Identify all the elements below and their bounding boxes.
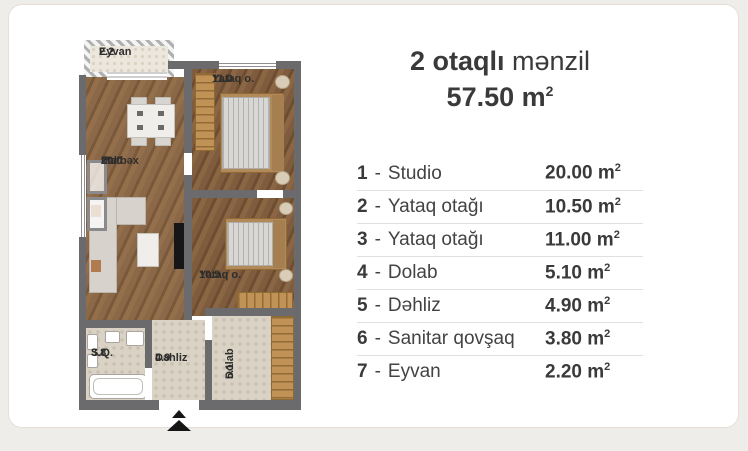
- floor-plan: Eyvan 2.2 Yataq o. 11.0 Zal Matbəx 20.0 …: [74, 35, 306, 440]
- bed2-blanket: [227, 222, 273, 266]
- row-number: 6: [357, 328, 368, 350]
- room-dolab-area: 5.1: [224, 364, 237, 379]
- legend-row: 1-Studio 20.00 m2: [357, 157, 643, 190]
- row-area: 3.80 m2: [545, 328, 610, 350]
- room-dehliz-area: 4.9: [155, 352, 170, 365]
- wall-dolab-top: [205, 308, 301, 316]
- row-dash: -: [375, 196, 381, 218]
- row-dash: -: [375, 163, 381, 185]
- room-zal-area: 20.0: [101, 155, 122, 168]
- title-word: mənzil: [512, 46, 590, 76]
- legend-row: 4-Dolab 5.10 m2: [357, 256, 643, 289]
- room-eyvan-area: 2.2: [99, 46, 114, 59]
- tv: [174, 223, 184, 269]
- room-sq-area: 3.8: [91, 347, 106, 360]
- wall-bottom-right: [199, 400, 301, 410]
- wall-hall-right: [205, 340, 212, 400]
- bathtub: [89, 374, 147, 399]
- sink: [105, 331, 120, 343]
- row-name: Sanitar qovşaq: [388, 328, 515, 350]
- door-bed1-bed2: [257, 190, 283, 198]
- legend-row: 3-Yataq otağı 11.00 m2: [357, 223, 643, 256]
- door-zal-bed1: [184, 153, 192, 175]
- window-casement-lower: [87, 197, 107, 231]
- row-name: Eyvan: [388, 361, 441, 383]
- window-bed1: [219, 61, 276, 69]
- total-area: 57.50 m2: [357, 81, 643, 115]
- nightstand: [275, 75, 290, 89]
- title-rooms-count: 2 otaqlı: [410, 46, 505, 76]
- total-area-unit: m2: [522, 82, 554, 112]
- entrance-arrow-icon: [167, 420, 191, 431]
- page-title: 2 otaqlı mənzil 57.50 m2: [357, 45, 643, 115]
- bed2-headboard: [273, 220, 285, 268]
- wall-bedroom-divider-end: [283, 190, 294, 198]
- door-dolab: [205, 316, 212, 340]
- row-number: 1: [357, 163, 368, 185]
- wall-bath-right: [145, 328, 152, 368]
- wall-left: [79, 75, 86, 410]
- row-area: 4.90 m2: [545, 295, 610, 317]
- window-balcony-door: [107, 72, 167, 80]
- wall-middle-lower: [184, 175, 192, 320]
- row-name: Studio: [388, 163, 442, 185]
- nightstand: [275, 171, 290, 185]
- wall-bedroom-divider: [192, 190, 257, 198]
- bed1-headboard: [272, 95, 284, 171]
- row-number: 3: [357, 229, 368, 251]
- apartment-card: Eyvan 2.2 Yataq o. 11.0 Zal Matbəx 20.0 …: [8, 4, 739, 428]
- washing-machine: [126, 331, 144, 346]
- row-number: 2: [357, 196, 368, 218]
- legend-row: 5-Dəhliz 4.90 m2: [357, 289, 643, 322]
- row-dash: -: [375, 262, 381, 284]
- row-dash: -: [375, 229, 381, 251]
- plate: [158, 125, 164, 130]
- page-background: { "header": { "title_bold": "2 otaqlı", …: [0, 0, 748, 451]
- dining-chair: [131, 137, 147, 146]
- row-area: 2.20 m2: [545, 361, 610, 383]
- room-legend: 1-Studio 20.00 m2 2-Yataq otağı 10.50 m2…: [357, 157, 643, 388]
- nightstand: [279, 269, 293, 282]
- room-bed1-area: 11.0: [212, 73, 233, 86]
- row-name: Yataq otağı: [388, 229, 484, 251]
- wall-right: [294, 61, 301, 410]
- label-dolab: Dolab 5.1: [224, 335, 264, 379]
- total-area-value: 57.50: [447, 82, 515, 112]
- wall-bottom-left: [79, 400, 159, 410]
- dolab-shelf: [271, 316, 294, 400]
- legend-row: 7-Eyvan 2.20 m2: [357, 355, 643, 388]
- door-bath: [145, 368, 152, 400]
- window-living: [79, 155, 86, 237]
- row-dash: -: [375, 328, 381, 350]
- row-area: 5.10 m2: [545, 262, 610, 284]
- row-number: 5: [357, 295, 368, 317]
- plate: [137, 125, 143, 130]
- plate: [137, 111, 143, 116]
- row-number: 4: [357, 262, 368, 284]
- row-name: Dəhliz: [388, 295, 441, 317]
- row-area: 10.50 m2: [545, 196, 621, 218]
- dining-table: [127, 104, 175, 138]
- wardrobe-bed2: [237, 292, 293, 309]
- title-line: 2 otaqlı mənzil: [357, 45, 643, 79]
- room-bed2-area: 10.5: [199, 269, 220, 282]
- legend-row: 2-Yataq otağı 10.50 m2: [357, 190, 643, 223]
- row-dash: -: [375, 361, 381, 383]
- plate: [158, 111, 164, 116]
- entrance-arrow-icon: [172, 410, 186, 418]
- nightstand: [279, 202, 293, 215]
- row-name: Dolab: [388, 262, 438, 284]
- dining-chair: [155, 137, 171, 146]
- sofa-pillow: [91, 260, 101, 272]
- row-area: 20.00 m2: [545, 162, 621, 184]
- row-area: 11.00 m2: [545, 229, 620, 251]
- row-dash: -: [375, 295, 381, 317]
- bed1-blanket: [222, 97, 270, 169]
- legend-row: 6-Sanitar qovşaq 3.80 m2: [357, 322, 643, 355]
- coffee-table: [137, 233, 159, 267]
- wall-middle-upper: [184, 69, 192, 153]
- row-name: Yataq otağı: [388, 196, 484, 218]
- wall-bath-top: [79, 320, 152, 328]
- row-number: 7: [357, 361, 368, 383]
